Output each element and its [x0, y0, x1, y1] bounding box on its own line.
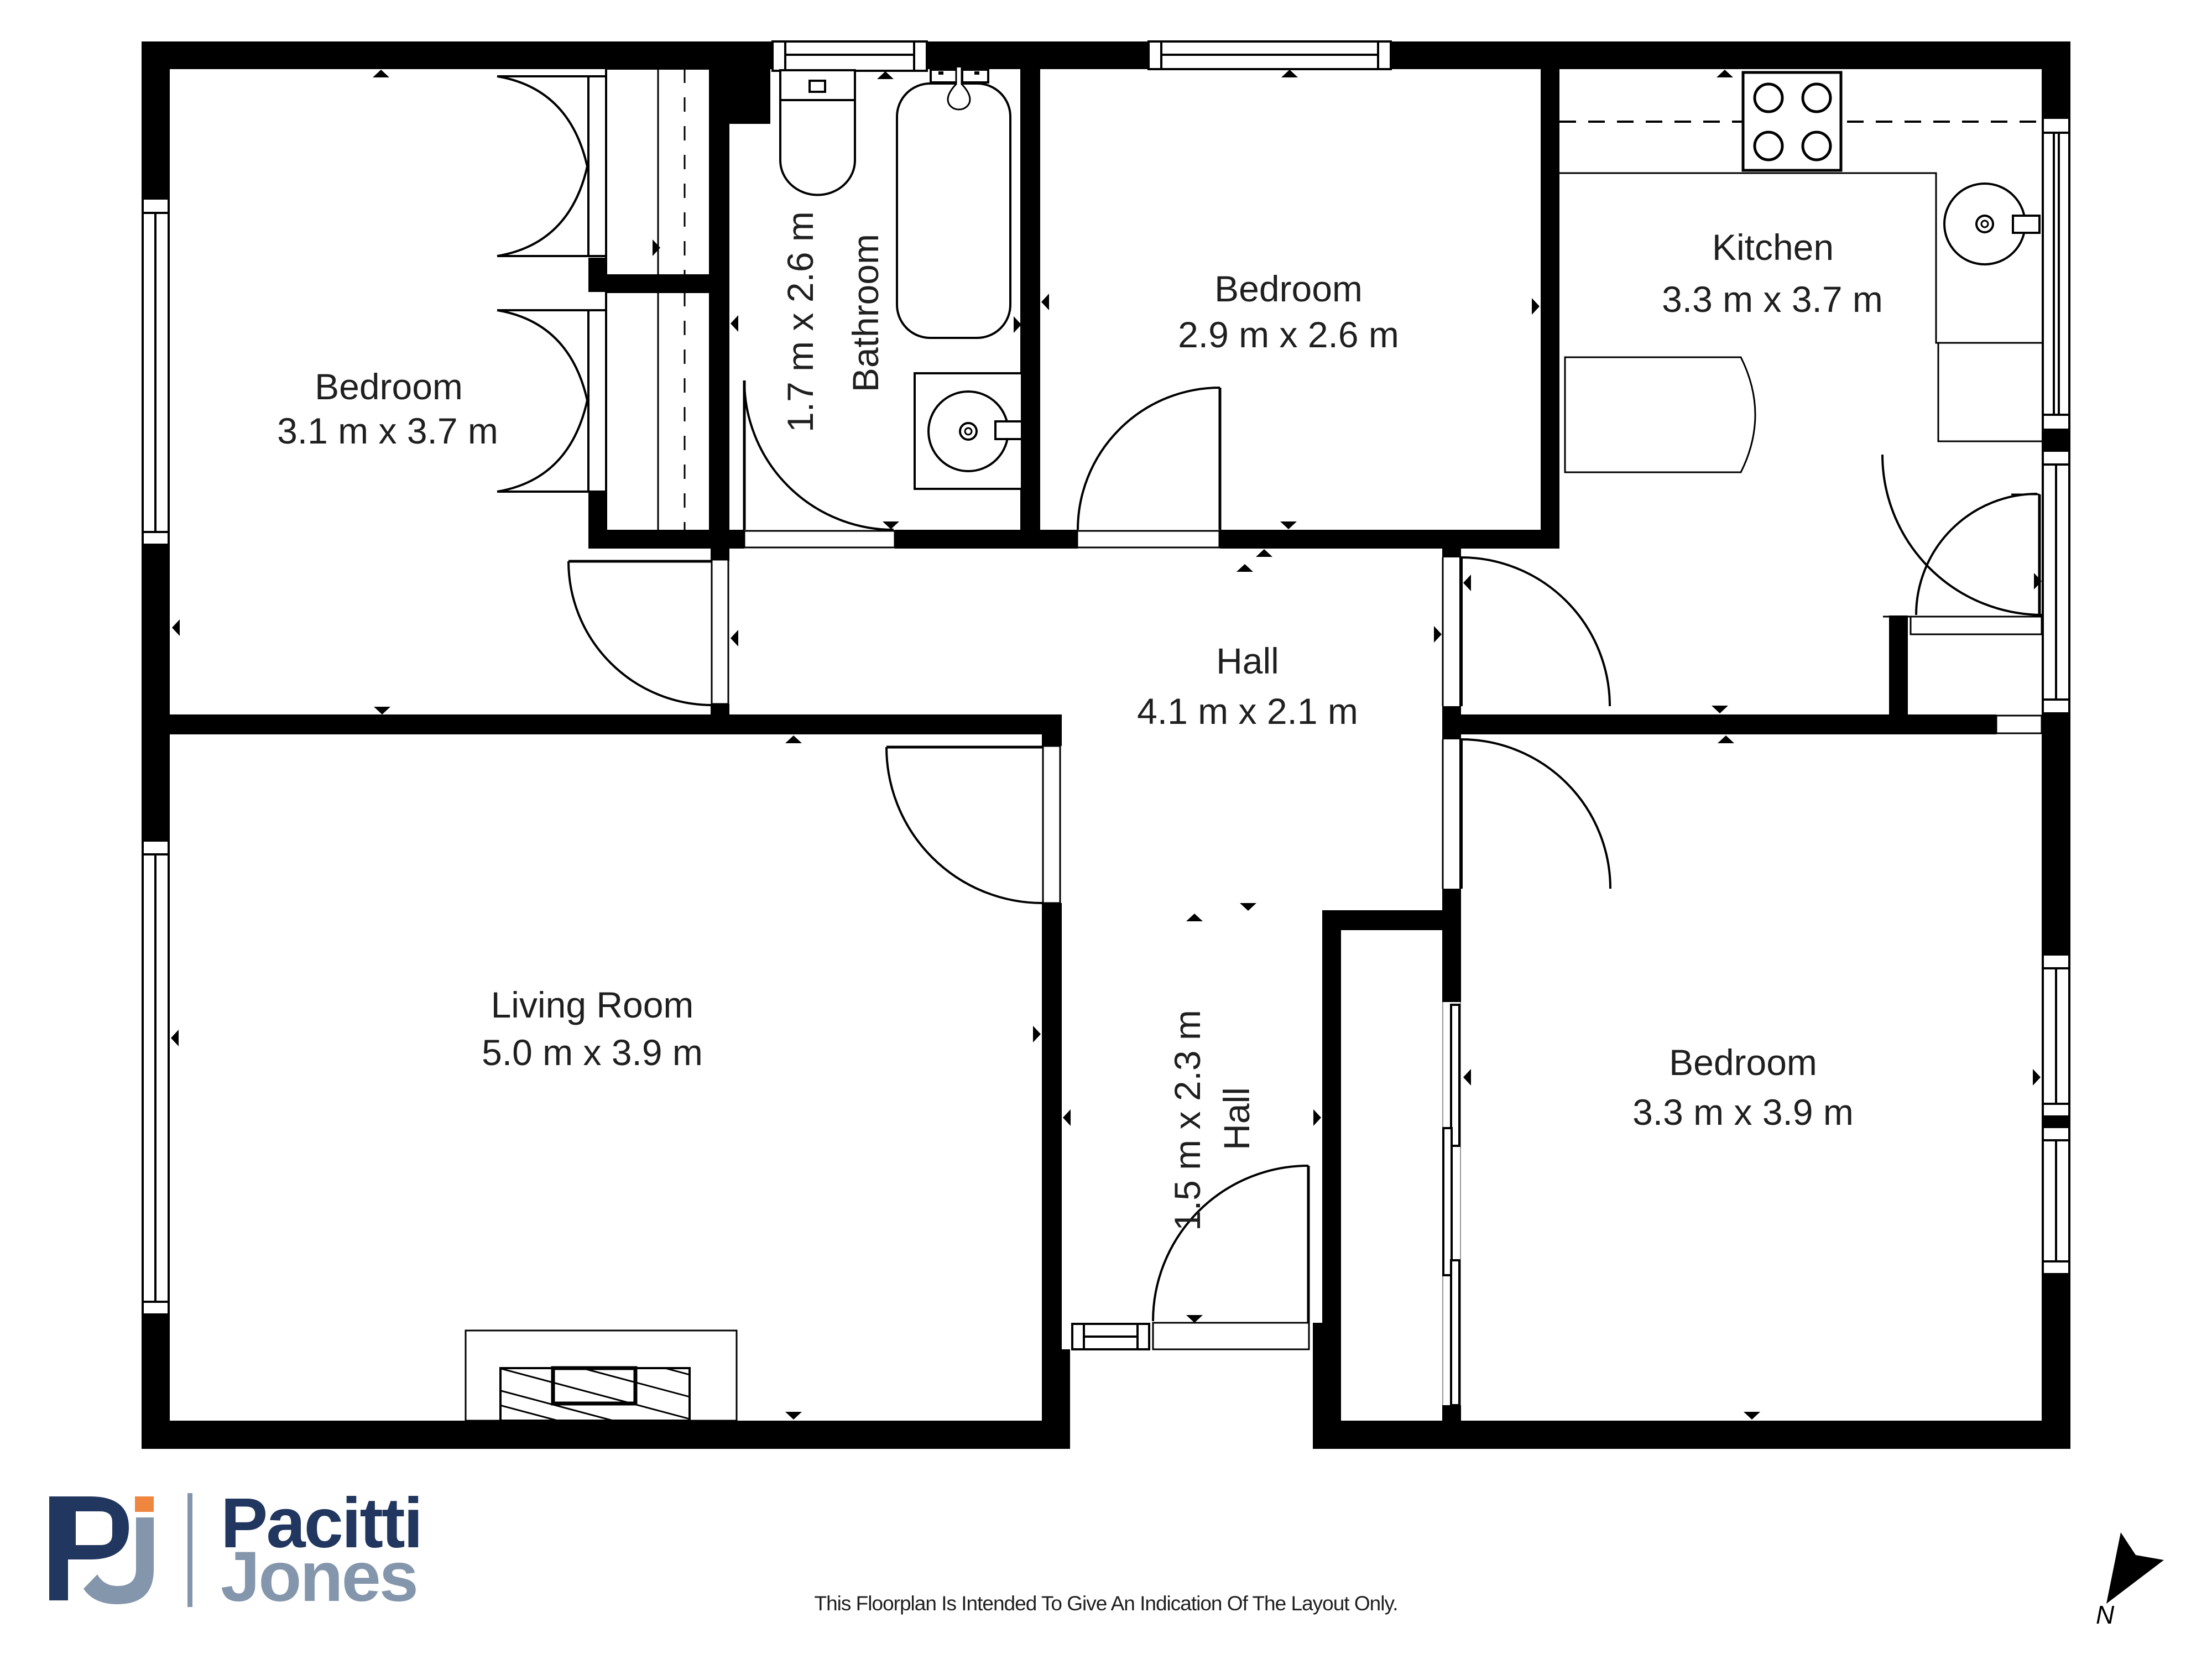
svg-text:1.5 m x 2.3 m: 1.5 m x 2.3 m: [1167, 1010, 1208, 1231]
svg-text:3.3 m x 3.9 m: 3.3 m x 3.9 m: [1632, 1092, 1854, 1133]
svg-text:This Floorplan Is Intended To: This Floorplan Is Intended To Give An In…: [815, 1592, 1398, 1615]
svg-text:Hall: Hall: [1216, 1087, 1257, 1150]
svg-text:Bathroom: Bathroom: [845, 234, 886, 392]
svg-text:Bedroom: Bedroom: [315, 366, 463, 407]
svg-text:Living Room: Living Room: [491, 984, 694, 1025]
svg-text:Bedroom: Bedroom: [1214, 268, 1363, 309]
svg-text:Hall: Hall: [1216, 640, 1279, 681]
svg-text:3.1 m x 3.7 m: 3.1 m x 3.7 m: [277, 410, 498, 451]
svg-text:3.3 m x 3.7 m: 3.3 m x 3.7 m: [1662, 279, 1883, 320]
svg-text:Bedroom: Bedroom: [1669, 1042, 1817, 1083]
svg-text:Jones: Jones: [221, 1537, 417, 1616]
svg-text:5.0 m x 3.9 m: 5.0 m x 3.9 m: [482, 1032, 703, 1073]
svg-text:Kitchen: Kitchen: [1712, 227, 1834, 268]
svg-text:2.9 m x 2.6 m: 2.9 m x 2.6 m: [1178, 314, 1399, 355]
svg-text:1.7 m x 2.6 m: 1.7 m x 2.6 m: [780, 211, 821, 432]
svg-text:4.1 m x 2.1 m: 4.1 m x 2.1 m: [1137, 691, 1358, 732]
svg-text:N: N: [2096, 1600, 2115, 1629]
